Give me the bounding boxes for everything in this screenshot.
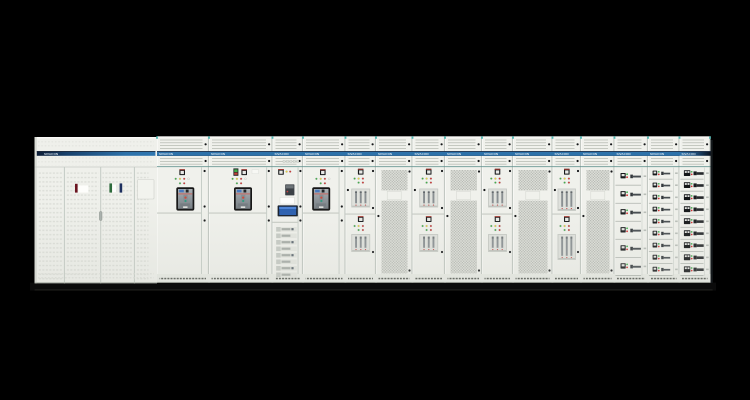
svg-text:SIVACON: SIVACON (348, 152, 362, 156)
svg-text:SIVACON: SIVACON (159, 152, 173, 156)
svg-text:SIVACON: SIVACON (447, 152, 461, 156)
svg-text:SIVACON: SIVACON (211, 152, 225, 156)
svg-text:SIVACON: SIVACON (378, 152, 392, 156)
svg-text:SIVACON: SIVACON (555, 152, 569, 156)
svg-text:SIVACON: SIVACON (583, 152, 597, 156)
svg-text:SIVACON: SIVACON (617, 152, 631, 156)
svg-text:SIVACON: SIVACON (484, 152, 498, 156)
svg-text:SIVACON: SIVACON (515, 152, 529, 156)
svg-text:SIVACON: SIVACON (415, 152, 429, 156)
svg-text:SIVACON: SIVACON (44, 152, 58, 156)
svg-text:SIVACON: SIVACON (275, 152, 289, 156)
svg-text:SIVACON: SIVACON (305, 152, 319, 156)
svg-text:SIVACON: SIVACON (650, 152, 664, 156)
svg-text:SIVACON: SIVACON (682, 152, 696, 156)
